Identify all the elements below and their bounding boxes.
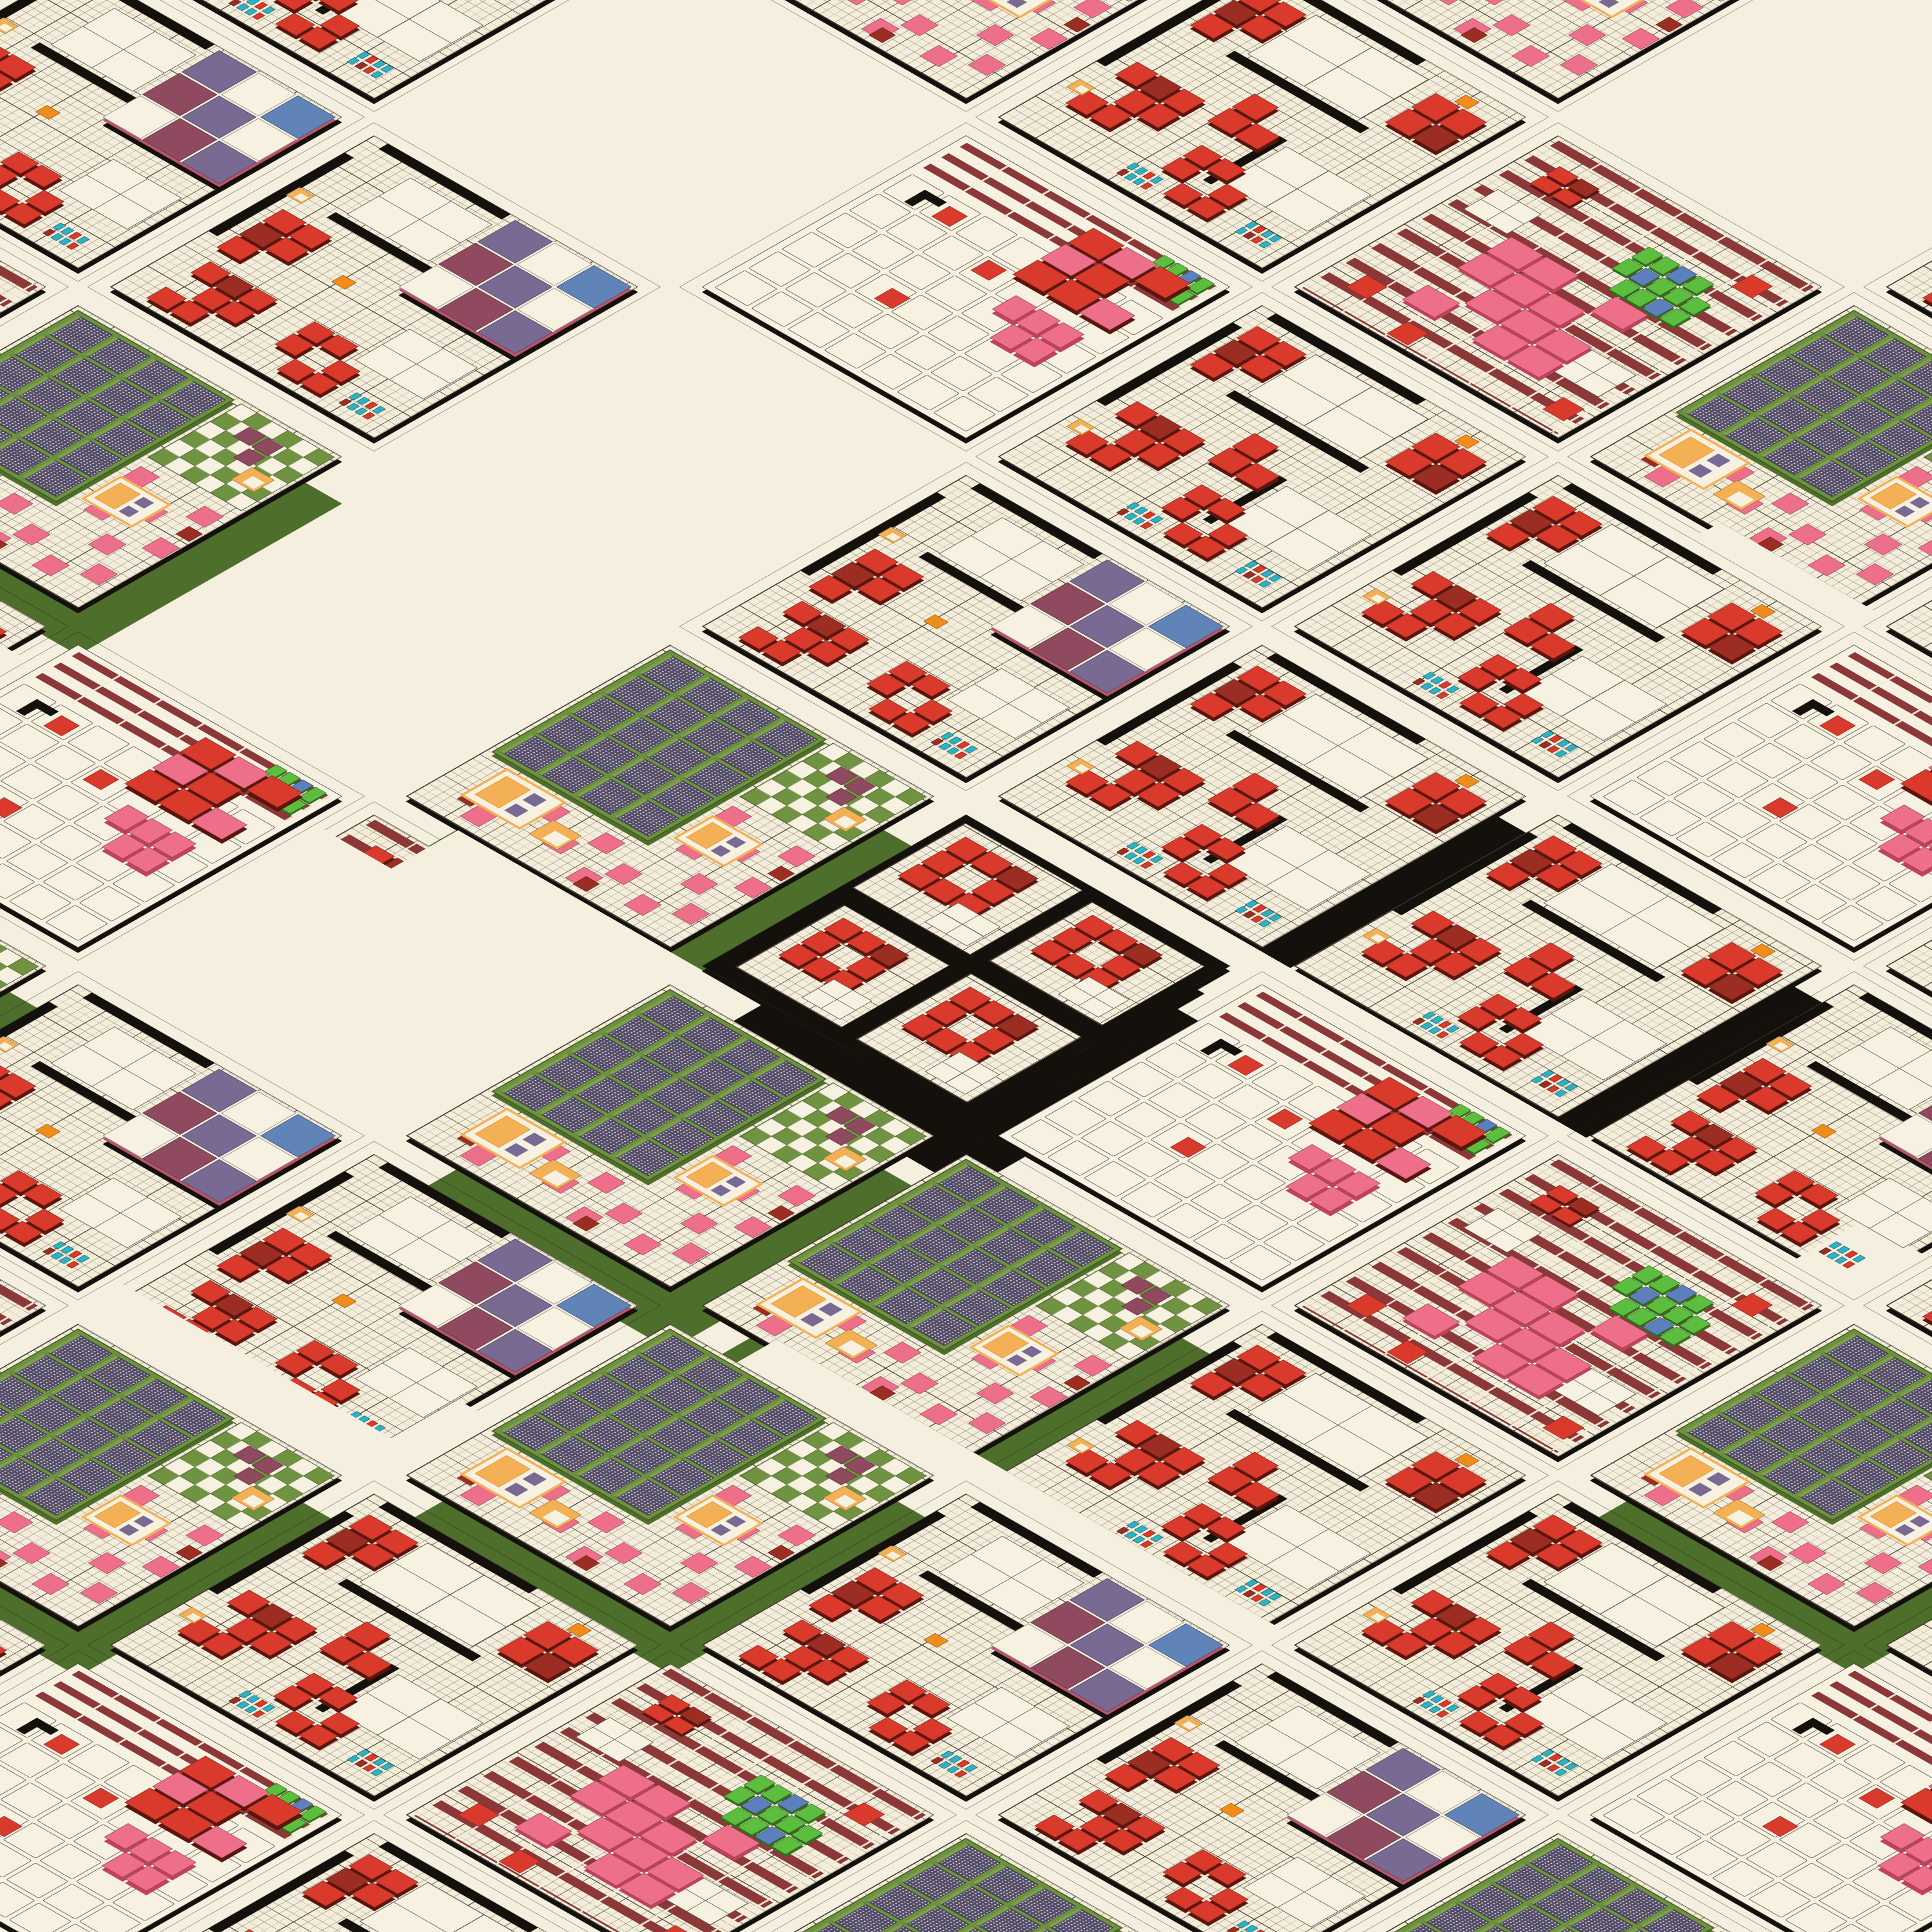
block-cluster: [1065, 401, 1206, 482]
block-cluster: [931, 732, 978, 759]
courtyard-block: [726, 497, 746, 509]
accent-square: [680, 1213, 718, 1235]
accent-square: [0, 17, 19, 34]
courtyard-block: [711, 1184, 731, 1196]
accent-square: [605, 863, 643, 885]
block-cluster: [1626, 91, 1757, 167]
accent-square: [1856, 1582, 1894, 1604]
accent-square: [1771, 1511, 1809, 1533]
block-cluster: [346, 730, 394, 757]
plain-court: [59, 1178, 182, 1249]
block-cluster: [473, 62, 614, 142]
accent-square: [605, 1542, 643, 1564]
accent-square: [777, 506, 815, 527]
courtyard-block: [1909, 1515, 1929, 1527]
block-cell: [362, 1430, 375, 1438]
block-cluster: [319, 603, 417, 659]
accent-square: [175, 526, 202, 542]
accent-square: [1219, 1803, 1245, 1817]
block-cluster: [1503, 942, 1600, 998]
block-cell: [1842, 1261, 1855, 1269]
block-cell: [676, 234, 690, 242]
accent-square: [1492, 14, 1530, 36]
courtyard: [80, 475, 171, 527]
block-cluster: [898, 837, 1038, 917]
block-cell: [0, 618, 7, 645]
accent-square: [768, 526, 795, 542]
courtyard-block: [726, 1515, 746, 1527]
accent-square: [331, 1294, 357, 1309]
accent-square: [1074, 1355, 1112, 1377]
block-cluster: [1531, 1070, 1578, 1097]
block-cell: [1922, 1305, 1932, 1329]
block-cell: [954, 752, 967, 759]
accent-square: [185, 1524, 223, 1546]
courtyard: [969, 1324, 1059, 1376]
accent-square: [768, 1206, 795, 1221]
block-cell: [954, 1770, 967, 1777]
accent-square: [672, 563, 710, 585]
plain-court: [947, 668, 1070, 739]
accent-square: [32, 1573, 70, 1595]
block-cluster: [1065, 741, 1206, 821]
block-cell: [1258, 920, 1272, 927]
courtyard-fill: [1658, 437, 1714, 469]
block-cluster: [43, 1241, 90, 1268]
accent-square: [968, 54, 1006, 76]
accent-square: [976, 24, 1014, 46]
block-cluster: [1922, 1280, 1932, 1356]
block-cell: [362, 412, 375, 419]
block-cell: [1922, 287, 1932, 310]
courtyard-block: [522, 1472, 547, 1486]
accent-square: [1788, 524, 1826, 545]
accent-square: [883, 1341, 921, 1363]
block-cell: [1554, 1768, 1567, 1776]
checker-cell: [1879, 1114, 1932, 1157]
courtyard-fill: [1870, 1501, 1917, 1528]
courtyard-block: [1689, 1482, 1713, 1497]
courtyard-block: [504, 1482, 529, 1497]
accent-square: [623, 1573, 661, 1595]
green-checker: [1035, 0, 1222, 2]
block-cluster: [1235, 561, 1282, 588]
block-cell: [381, 65, 394, 73]
courtyard-fill: [94, 482, 141, 509]
courtyard-fill: [1658, 1455, 1714, 1488]
accent-square: [1864, 533, 1902, 555]
block-cell: [370, 750, 384, 757]
block-cluster: [1626, 1110, 1757, 1186]
green-checker: [0, 913, 39, 1020]
accent-square: [1811, 105, 1837, 120]
block-cluster: [0, 1621, 7, 1680]
accent-square: [1856, 563, 1894, 585]
courtyard-block: [1895, 1524, 1915, 1536]
accent-square: [331, 275, 357, 290]
plain-court: [355, 1347, 478, 1418]
accent-square: [968, 1412, 1006, 1434]
block-cell: [1269, 574, 1282, 582]
plain-court: [355, 328, 478, 399]
block-cell: [66, 242, 80, 250]
block-cluster: [1361, 1590, 1502, 1671]
accent-square: [768, 866, 795, 881]
accent-square: [623, 894, 661, 916]
accent-square: [1771, 493, 1809, 515]
courtyard-block: [1707, 453, 1731, 468]
courtyard-block: [1599, 0, 1619, 8]
block-cluster: [1235, 221, 1282, 248]
block-cell: [1258, 580, 1272, 588]
courtyard-block: [504, 804, 529, 818]
block-cluster: [738, 601, 869, 676]
block-cluster: [177, 1590, 317, 1671]
block-cluster: [1361, 911, 1502, 991]
accent-square: [35, 1124, 61, 1139]
courtyard-block: [726, 837, 746, 848]
courtyard: [80, 1494, 171, 1546]
courtyard-fill: [982, 1332, 1029, 1359]
accent-square: [1074, 0, 1112, 19]
accent-square: [900, 1372, 938, 1394]
block-cell: [1852, 236, 1866, 244]
accent-square: [976, 1382, 1014, 1404]
accent-square: [923, 614, 949, 629]
block-cell: [0, 1636, 7, 1664]
courtyard-block: [119, 1524, 139, 1536]
accent-square: [734, 1556, 772, 1578]
accent-square: [605, 524, 643, 545]
accent-square: [32, 554, 70, 576]
courtyard-block: [504, 464, 529, 478]
block-cell: [548, 182, 562, 190]
accent-square: [734, 1217, 772, 1238]
accent-square: [768, 1545, 795, 1560]
accent-square: [587, 1511, 625, 1533]
block-cell: [964, 746, 978, 753]
block-cluster: [43, 223, 90, 250]
accent-square: [142, 1556, 180, 1578]
accent-square: [1811, 1124, 1837, 1139]
accent-square: [185, 506, 223, 527]
courtyard-block: [504, 1143, 529, 1157]
plain-court: [925, 1052, 999, 1095]
accent-square: [80, 563, 118, 585]
courtyard-fill: [475, 1115, 531, 1148]
accent-square: [680, 873, 718, 895]
courtyard-block: [134, 497, 154, 509]
accent-square: [900, 14, 938, 36]
accent-square: [1665, 0, 1703, 19]
courtyard-block: [1895, 506, 1915, 517]
courtyard-block: [522, 793, 547, 808]
accent-square: [88, 1552, 126, 1574]
block-cell: [1842, 242, 1855, 250]
accent-square: [1864, 1552, 1902, 1574]
block-cluster: [1819, 223, 1866, 250]
courtyard-block: [1707, 1472, 1731, 1486]
accent-square: [1063, 17, 1090, 32]
accent-square: [672, 903, 710, 925]
block-cell: [1564, 1083, 1578, 1091]
block-cell: [370, 1768, 384, 1776]
block-cell: [1269, 234, 1282, 242]
courtyard: [673, 1155, 764, 1207]
accent-square: [734, 537, 772, 559]
block-cluster: [616, 93, 713, 149]
plain-court: [1243, 1857, 1366, 1927]
accent-square: [88, 533, 126, 555]
block-cluster: [1235, 900, 1282, 927]
accent-square: [923, 1633, 949, 1648]
accent-square: [1560, 54, 1598, 76]
block-cluster: [1207, 773, 1305, 829]
block-cluster: [339, 1411, 386, 1438]
block-cluster: [643, 221, 690, 248]
block-cluster: [346, 52, 394, 79]
accent-square: [672, 1582, 710, 1604]
courtyard-block: [711, 1524, 731, 1536]
accent-square: [12, 524, 50, 545]
accent-square: [587, 493, 625, 515]
courtyard-block: [522, 1133, 547, 1147]
block-cluster: [738, 1620, 869, 1695]
courtyard-block: [800, 1313, 825, 1327]
plain-court: [1835, 159, 1932, 230]
block-cluster: [1361, 571, 1502, 652]
block-cluster: [0, 602, 7, 661]
block-cell: [1554, 1090, 1567, 1097]
courtyard-fill: [94, 1501, 141, 1528]
block-cluster: [1503, 603, 1600, 659]
courtyard-block: [1007, 0, 1027, 8]
block-cell: [372, 406, 386, 413]
block-cell: [964, 1764, 978, 1772]
plain-court: [947, 1687, 1070, 1757]
block-cell: [667, 240, 680, 248]
courtyard-block: [1022, 1346, 1042, 1358]
courtyard-fill: [475, 437, 531, 469]
courtyard-block: [1689, 464, 1713, 478]
block-cluster: [0, 39, 36, 106]
courtyard-block: [711, 845, 731, 857]
block-cell: [370, 71, 384, 79]
accent-square: [1030, 1386, 1068, 1408]
block-cluster: [339, 392, 386, 419]
courtyard: [673, 1494, 764, 1546]
accent-square: [777, 1524, 815, 1546]
accent-square: [175, 1545, 202, 1560]
block-cell: [66, 1261, 80, 1269]
block-cluster: [902, 987, 1039, 1065]
block-cell: [1436, 691, 1450, 699]
accent-square: [0, 1036, 19, 1053]
block-cell: [318, 0, 358, 12]
block-cell: [1554, 750, 1567, 757]
block-cluster: [1065, 62, 1206, 142]
block-cell: [1564, 744, 1578, 752]
accent-square: [35, 105, 61, 120]
accent-square: [1788, 1542, 1826, 1564]
courtyard-block: [726, 1176, 746, 1188]
block-cluster: [1226, 1920, 1274, 1932]
courtyard-fill: [475, 1455, 531, 1488]
courtyard-block: [819, 1303, 843, 1317]
block-cell: [1258, 240, 1272, 248]
courtyard-block: [1909, 497, 1929, 509]
block-cell: [1140, 522, 1153, 529]
accent-square: [1030, 28, 1068, 50]
courtyard: [673, 475, 764, 527]
plain-court: [59, 159, 182, 230]
courtyard-block: [119, 506, 139, 517]
accent-square: [0, 493, 33, 515]
block-cell: [252, 12, 265, 20]
block-cluster: [1922, 261, 1932, 337]
block-cell: [1269, 914, 1282, 922]
accent-square: [920, 45, 958, 67]
accent-square: [838, 0, 876, 5]
block-cluster: [779, 918, 909, 992]
courtyard-block: [711, 506, 731, 517]
courtyard-fill: [686, 822, 733, 849]
accent-square: [587, 1172, 625, 1194]
isometric-circuit-city-artwork: [0, 0, 1932, 1932]
accent-square: [12, 1542, 50, 1564]
block-cluster: [1207, 93, 1305, 149]
accent-square: [1918, 1556, 1932, 1578]
block-cluster: [1030, 915, 1162, 991]
block-cluster: [1034, 1789, 1166, 1864]
block-cell: [1436, 1710, 1450, 1718]
accent-square: [883, 0, 921, 5]
accent-square: [80, 1582, 118, 1604]
courtyard-fill: [475, 776, 531, 808]
accent-square: [734, 876, 772, 898]
courtyard-fill: [1870, 482, 1917, 509]
courtyard-fill: [686, 482, 733, 509]
block-cell: [381, 744, 394, 752]
plain-court: [925, 902, 1001, 946]
accent-square: [920, 1403, 958, 1425]
accent-square: [1808, 1573, 1846, 1595]
block-cluster: [146, 1280, 278, 1356]
accent-square: [1475, 0, 1513, 5]
block-cluster: [931, 1750, 978, 1777]
block-cell: [1269, 1593, 1282, 1600]
block-cell: [1140, 861, 1153, 869]
block-cluster: [177, 1929, 317, 1932]
block-cell: [1564, 1763, 1578, 1770]
block-cluster: [1207, 1452, 1305, 1508]
checker-cell: [1879, 95, 1932, 138]
block-cell: [1852, 1255, 1866, 1262]
block-cluster: [1819, 1241, 1866, 1268]
accent-square: [1918, 537, 1932, 559]
block-cluster: [1235, 1579, 1282, 1606]
block-cell: [252, 1710, 265, 1718]
accent-square: [142, 537, 180, 559]
block-cluster: [177, 571, 317, 652]
courtyard-fill: [771, 1285, 827, 1318]
accent-square: [1808, 554, 1846, 576]
block-cluster: [1065, 1420, 1206, 1501]
plain-court: [1835, 1178, 1932, 1249]
block-cell: [372, 1425, 386, 1432]
block-cluster: [1531, 1749, 1578, 1776]
courtyard: [673, 815, 764, 867]
accent-square: [623, 1233, 661, 1255]
block-cell: [252, 691, 265, 699]
accent-square: [777, 1185, 815, 1207]
accent-square: [672, 1242, 710, 1264]
block-cell: [227, 1929, 270, 1932]
block-cell: [273, 0, 313, 10]
accent-square: [1656, 17, 1683, 32]
accent-square: [1511, 45, 1549, 67]
courtyard-block: [1007, 1354, 1027, 1366]
block-cell: [76, 236, 90, 244]
accent-square: [1063, 1375, 1090, 1390]
block-cell: [1140, 182, 1153, 190]
block-cell: [1258, 1598, 1272, 1606]
plain-court: [1058, 976, 1130, 1018]
accent-square: [1568, 24, 1606, 46]
courtyard-fill: [686, 1501, 733, 1528]
block-cluster: [346, 1749, 394, 1776]
block-cell: [1436, 1031, 1450, 1039]
accent-square: [680, 533, 718, 555]
accent-square: [587, 832, 625, 854]
block-cell: [76, 1255, 90, 1262]
courtyard-fill: [686, 1162, 733, 1189]
block-cluster: [0, 1058, 36, 1124]
block-cluster: [1531, 730, 1578, 757]
accent-square: [605, 1202, 643, 1224]
plain-court: [802, 979, 873, 1019]
block-cell: [1140, 1540, 1153, 1548]
block-cell: [1226, 1926, 1240, 1932]
accent-square: [680, 1552, 718, 1574]
block-cluster: [1207, 433, 1305, 489]
green-checker: [1627, 0, 1815, 2]
accent-square: [1622, 28, 1660, 50]
accent-square: [777, 846, 815, 867]
courtyard-block: [134, 1515, 154, 1527]
block-cluster: [146, 261, 278, 337]
block-cluster: [319, 1622, 417, 1678]
accent-square: [1430, 0, 1468, 5]
courtyard-block: [522, 453, 547, 468]
accent-square: [0, 1511, 33, 1533]
block-cluster: [1503, 1622, 1600, 1678]
accent-square: [623, 554, 661, 576]
block-cell: [381, 1763, 394, 1770]
